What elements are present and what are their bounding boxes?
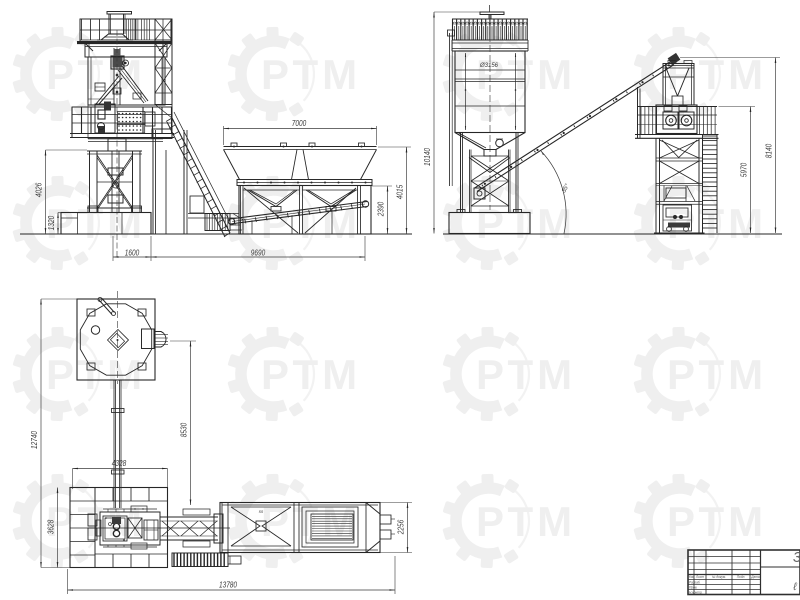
svg-text:3628: 3628 xyxy=(47,519,56,534)
svg-text:Разраб.: Разраб. xyxy=(689,580,701,584)
svg-text:Дата: Дата xyxy=(750,575,760,579)
svg-text:9690: 9690 xyxy=(251,248,266,257)
svg-text:12740: 12740 xyxy=(30,431,39,449)
svg-text:РТМ: РТМ xyxy=(261,51,361,98)
svg-text:10140: 10140 xyxy=(423,148,432,166)
svg-text:РТМ: РТМ xyxy=(476,498,576,545)
svg-text:Пров.: Пров. xyxy=(689,585,698,589)
svg-text:3: 3 xyxy=(793,549,800,566)
svg-text:РТМ: РТМ xyxy=(46,351,146,398)
svg-text:Ø3156: Ø3156 xyxy=(479,63,499,69)
svg-text:1600: 1600 xyxy=(125,248,140,257)
svg-text:№ докум.: № докум. xyxy=(712,575,726,579)
svg-text:8530: 8530 xyxy=(180,422,189,437)
svg-text:ss: ss xyxy=(259,509,264,514)
svg-text:РТМ: РТМ xyxy=(261,351,361,398)
svg-text:2390: 2390 xyxy=(377,201,386,217)
svg-text:Подп.: Подп. xyxy=(737,575,746,579)
svg-text:РТМ: РТМ xyxy=(667,351,767,398)
svg-text:Н.контр.: Н.контр. xyxy=(689,590,703,594)
svg-text:5970: 5970 xyxy=(740,162,749,177)
svg-text:1320: 1320 xyxy=(47,215,56,230)
svg-text:РТМ: РТМ xyxy=(476,51,576,98)
svg-text:4328: 4328 xyxy=(112,459,127,468)
svg-text:РТМ: РТМ xyxy=(667,51,767,98)
svg-text:2256: 2256 xyxy=(397,519,406,535)
svg-text:13780: 13780 xyxy=(219,581,237,590)
svg-text:4015: 4015 xyxy=(396,184,405,199)
svg-text:ℓ: ℓ xyxy=(792,581,797,593)
svg-text:Лист: Лист xyxy=(695,575,705,579)
svg-text:4026: 4026 xyxy=(35,182,44,197)
svg-text:РТМ: РТМ xyxy=(476,351,576,398)
svg-text:РТМ: РТМ xyxy=(476,200,576,247)
svg-text:7000: 7000 xyxy=(292,119,307,128)
svg-text:8140: 8140 xyxy=(765,143,774,158)
svg-text:РТМ: РТМ xyxy=(667,498,767,545)
svg-text:Изм: Изм xyxy=(688,575,695,579)
